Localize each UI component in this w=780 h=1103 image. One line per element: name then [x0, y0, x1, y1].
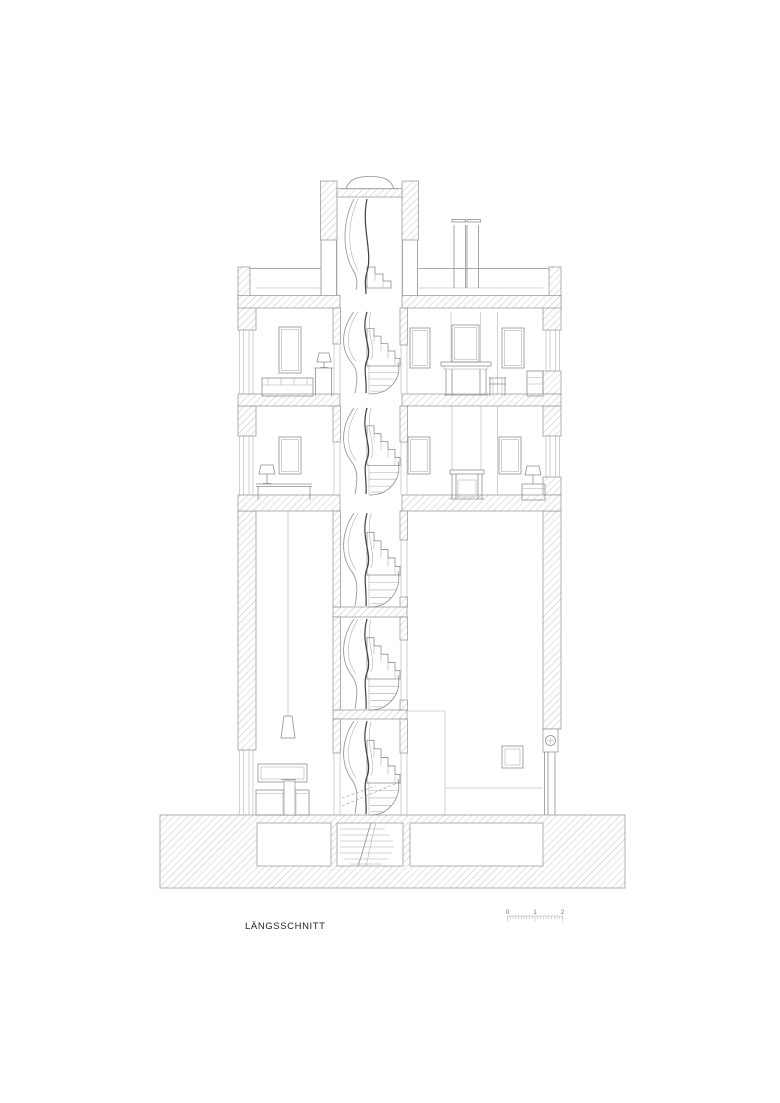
stair-flight-tower — [345, 199, 391, 294]
picture-frame — [502, 746, 523, 768]
stair-flight-ground — [344, 721, 400, 815]
ground-mass — [160, 815, 625, 888]
stair-tower — [321, 177, 419, 296]
scale-label-2: 2 — [561, 910, 565, 916]
parapet-left — [238, 267, 250, 296]
nightstand — [527, 371, 543, 396]
chimney-breast — [452, 406, 498, 495]
entry-door — [543, 729, 558, 815]
window-frame — [279, 327, 301, 373]
window-frame — [499, 437, 521, 474]
window-left-ground — [240, 750, 254, 815]
floor-slab-2 — [238, 495, 561, 511]
scale-label-1: 1 — [533, 910, 537, 916]
room-ground-left — [256, 511, 309, 815]
room-ground-right — [407, 711, 543, 815]
room-floor2-left — [256, 437, 312, 500]
fireplace — [450, 470, 484, 499]
fireplace-mantel — [441, 362, 491, 395]
parapet-right — [549, 267, 561, 296]
scale-ruler — [508, 916, 563, 922]
drawing-sheet: LÄNGSSCHNITT 0 1 2 — [0, 0, 780, 1103]
scale-bar: 0 1 2 — [506, 910, 565, 922]
skylight-dome-icon — [346, 177, 394, 190]
table-lamp — [259, 465, 275, 484]
pendant-lamp — [281, 511, 295, 738]
spiral-staircase — [342, 199, 402, 815]
chimney — [452, 220, 481, 289]
scale-label-0: 0 — [506, 910, 510, 916]
exterior-wall-left — [238, 267, 256, 815]
mantel-mirror — [452, 325, 479, 362]
room-floor2-right — [408, 406, 545, 500]
window-left-floor2 — [240, 436, 254, 495]
roof-slab — [238, 269, 561, 309]
chimney-breast — [451, 312, 498, 394]
window-frame — [408, 437, 430, 474]
window-frame — [410, 328, 430, 368]
cellar-stair-pit — [337, 823, 403, 866]
stair-flight-mid1 — [344, 513, 400, 607]
exterior-wall-right — [543, 267, 561, 815]
room-floor3-right — [410, 312, 543, 396]
stair-flight-mid2 — [344, 619, 400, 710]
table-lamp — [525, 466, 541, 484]
window-left-floor3 — [240, 330, 254, 394]
stair-flight-floor2 — [344, 408, 400, 495]
cellar-room-left — [257, 823, 331, 866]
side-table — [314, 368, 333, 396]
window-frame — [279, 437, 301, 474]
table-lamp — [317, 353, 331, 368]
section-drawing: LÄNGSSCHNITT 0 1 2 — [0, 0, 780, 1103]
window-frame — [502, 328, 524, 368]
drawing-title: LÄNGSSCHNITT — [245, 921, 326, 932]
stair-shaft — [333, 308, 408, 815]
window-right-floor2 — [546, 436, 560, 477]
kitchen-counter — [256, 780, 309, 816]
room-floor3-left — [262, 327, 333, 396]
stair-flight-floor3 — [344, 312, 400, 394]
alcove-lines — [407, 711, 543, 815]
sofa — [262, 378, 313, 396]
window-right-floor3 — [546, 330, 560, 371]
cellar-room-right — [410, 823, 543, 866]
